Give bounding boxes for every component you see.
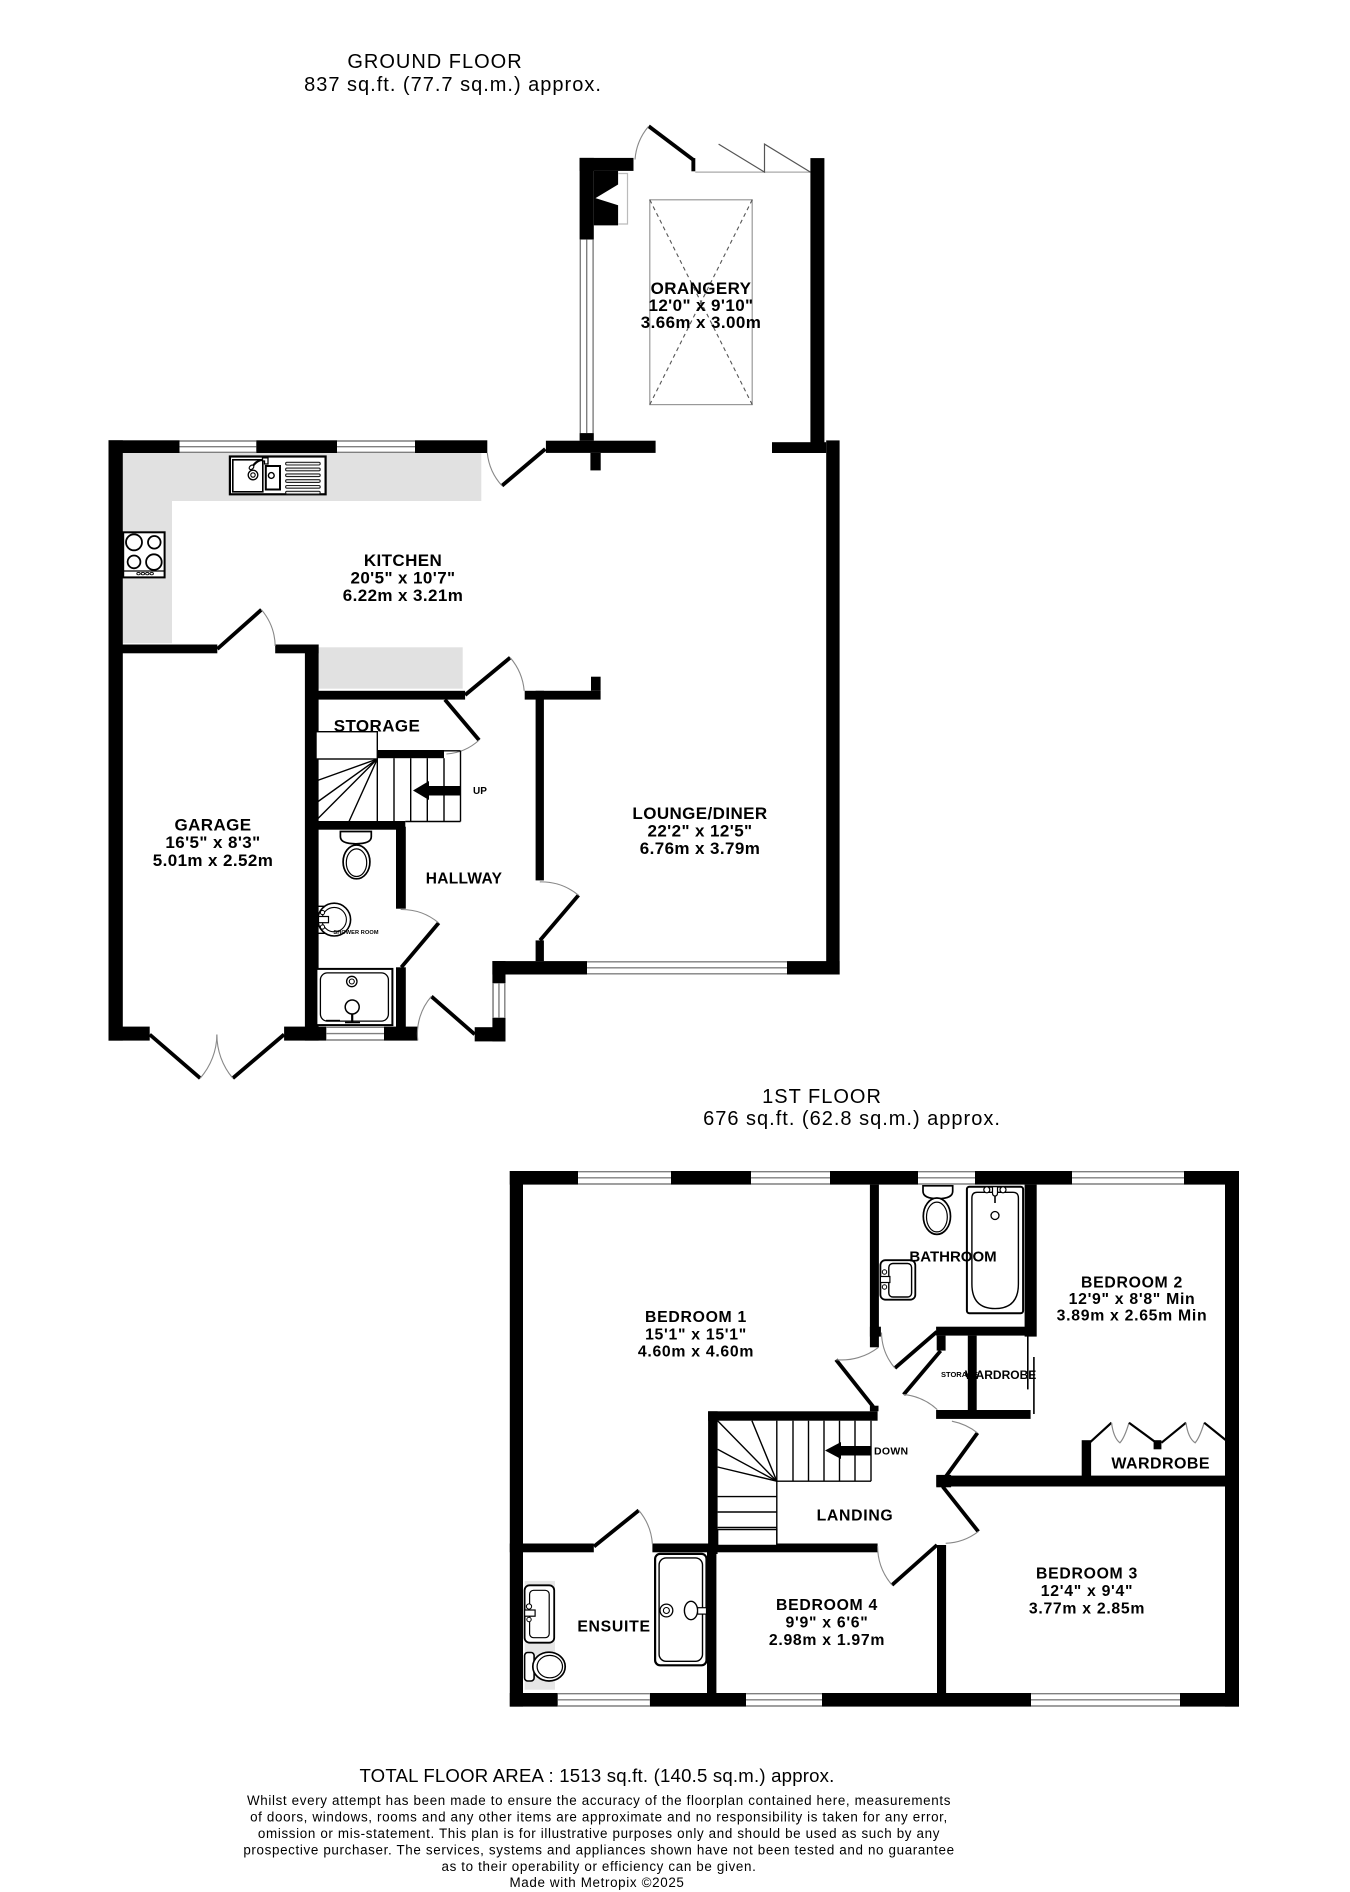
svg-text:20'5" x 10'7": 20'5" x 10'7": [350, 569, 455, 588]
svg-text:HALLWAY: HALLWAY: [426, 870, 503, 887]
svg-text:1ST FLOOR: 1ST FLOOR: [762, 1086, 882, 1108]
svg-text:STORAGE: STORAGE: [334, 717, 421, 736]
svg-text:WARDROBE: WARDROBE: [1111, 1456, 1210, 1473]
svg-text:6.76m x 3.79m: 6.76m x 3.79m: [640, 839, 761, 858]
svg-text:SHOWER ROOM: SHOWER ROOM: [333, 930, 378, 936]
svg-text:ENSUITE: ENSUITE: [577, 1619, 650, 1636]
svg-text:16'5" x 8'3": 16'5" x 8'3": [165, 833, 260, 852]
svg-text:15'1" x 15'1": 15'1" x 15'1": [645, 1326, 747, 1343]
svg-text:BATHROOM: BATHROOM: [909, 1248, 996, 1265]
svg-text:4.60m x 4.60m: 4.60m x 4.60m: [638, 1344, 754, 1361]
svg-text:BEDROOM 3: BEDROOM 3: [1036, 1566, 1138, 1583]
svg-text:as to their operability or eff: as to their operability or efficiency ca…: [441, 1859, 756, 1874]
svg-text:22'2" x 12'5": 22'2" x 12'5": [647, 821, 752, 840]
svg-text:12'9" x 8'8" Min: 12'9" x 8'8" Min: [1069, 1291, 1196, 1308]
svg-text:BEDROOM 4: BEDROOM 4: [776, 1597, 878, 1614]
svg-text:LANDING: LANDING: [817, 1507, 894, 1524]
svg-text:12'4" x 9'4": 12'4" x 9'4": [1041, 1583, 1133, 1600]
svg-text:omission or mis-statement. Thi: omission or mis-statement. This plan is …: [258, 1826, 940, 1841]
svg-text:WARDROBE: WARDROBE: [965, 1368, 1036, 1382]
svg-text:LOUNGE/DINER: LOUNGE/DINER: [632, 804, 767, 823]
svg-text:UP: UP: [473, 786, 487, 797]
svg-text:9'9" x 6'6": 9'9" x 6'6": [786, 1615, 869, 1632]
svg-text:837 sq.ft. (77.7 sq.m.) approx: 837 sq.ft. (77.7 sq.m.) approx.: [304, 74, 602, 96]
svg-text:BEDROOM 2: BEDROOM 2: [1081, 1275, 1183, 1292]
svg-text:Whilst every attempt has been: Whilst every attempt has been made to en…: [247, 1793, 951, 1808]
svg-text:BEDROOM 1: BEDROOM 1: [645, 1309, 747, 1326]
svg-text:of doors, windows, rooms and a: of doors, windows, rooms and any other i…: [250, 1810, 948, 1825]
svg-text:Made with Metropix ©2025: Made with Metropix ©2025: [509, 1875, 684, 1890]
svg-text:676 sq.ft. (62.8 sq.m.) approx: 676 sq.ft. (62.8 sq.m.) approx.: [703, 1108, 1001, 1130]
svg-text:3.77m x 2.85m: 3.77m x 2.85m: [1029, 1601, 1145, 1618]
svg-text:5.01m x 2.52m: 5.01m x 2.52m: [153, 851, 274, 870]
svg-text:3.66m x 3.00m: 3.66m x 3.00m: [641, 313, 762, 332]
svg-text:prospective purchaser. The ser: prospective purchaser. The services, sys…: [243, 1843, 954, 1858]
svg-text:3.89m x 2.65m Min: 3.89m x 2.65m Min: [1057, 1308, 1208, 1325]
svg-text:DOWN: DOWN: [874, 1446, 908, 1458]
svg-text:2.98m x 1.97m: 2.98m x 1.97m: [769, 1632, 885, 1649]
svg-text:KITCHEN: KITCHEN: [364, 551, 442, 570]
svg-text:GROUND FLOOR: GROUND FLOOR: [347, 51, 522, 73]
svg-text:6.22m x 3.21m: 6.22m x 3.21m: [343, 586, 464, 605]
svg-text:TOTAL FLOOR AREA : 1513 sq.ft.: TOTAL FLOOR AREA : 1513 sq.ft. (140.5 sq…: [359, 1765, 834, 1786]
svg-text:GARAGE: GARAGE: [174, 816, 251, 835]
